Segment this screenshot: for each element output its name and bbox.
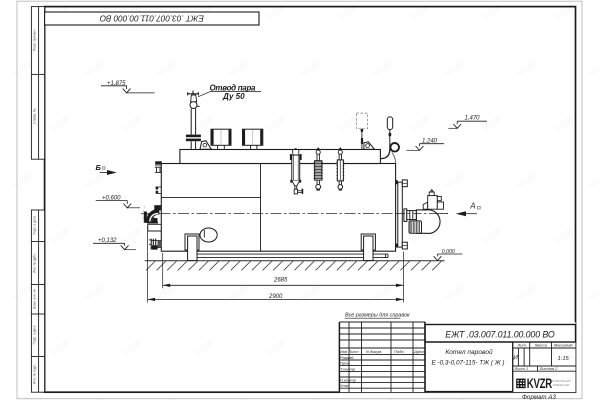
svg-text:Формат А3: Формат А3 <box>522 394 556 400</box>
svg-text:Все размеры для справок: Все размеры для справок <box>345 313 410 319</box>
svg-text:Перв. примен.: Перв. примен. <box>33 29 37 52</box>
svg-text:Котел паровой: Котел паровой <box>445 348 493 356</box>
svg-text:Масштаб: Масштаб <box>554 343 573 348</box>
svg-text:Справ. №: Справ. № <box>33 108 37 124</box>
svg-text:KVZR: KVZR <box>527 377 553 392</box>
svg-text:N докум.: N докум. <box>366 349 382 354</box>
svg-text:Подп. и дата: Подп. и дата <box>33 325 37 344</box>
svg-text:ЕЖТ .03.007.011.00.000 ВО: ЕЖТ .03.007.011.00.000 ВО <box>445 329 555 339</box>
svg-text:Инв. № подл.: Инв. № подл. <box>33 364 37 384</box>
svg-text:Взам. инв. №: Взам. инв. № <box>33 289 37 309</box>
svg-text:Е -0,3-0,07-115- ТЖ ( Ж ): Е -0,3-0,07-115- ТЖ ( Ж ) <box>431 359 504 366</box>
svg-text:Т.контр: Т.контр <box>340 366 356 371</box>
svg-text:А: А <box>469 201 475 210</box>
svg-text:Утв.: Утв. <box>340 383 349 388</box>
svg-text:Лит.: Лит. <box>517 343 527 348</box>
svg-text:Масса: Масса <box>535 343 548 348</box>
svg-text:2685: 2685 <box>273 278 288 284</box>
svg-text:Н.контр: Н.контр <box>340 378 357 383</box>
svg-text:Разраб.: Разраб. <box>340 355 354 360</box>
svg-text:2900: 2900 <box>268 294 283 300</box>
svg-text:Б: Б <box>96 163 102 172</box>
svg-text:1:15: 1:15 <box>558 356 570 362</box>
svg-text:Изм Лист: Изм Лист <box>340 349 359 354</box>
svg-text:Подп.: Подп. <box>394 349 405 354</box>
svg-text:И: И <box>513 355 518 362</box>
svg-text:Инв. № дубл.: Инв. № дубл. <box>33 253 37 273</box>
svg-text:ЗАВОД РЭР: ЗАВОД РЭР <box>553 383 570 387</box>
svg-text:Подп. и дата: Подп. и дата <box>33 216 37 235</box>
svg-text:Ду 50: Ду 50 <box>222 92 245 101</box>
svg-text:Пров.: Пров. <box>340 361 351 366</box>
svg-text:Лист 1: Лист 1 <box>514 366 529 371</box>
svg-text:ЕЖТ .03.007.011.00.000 ВО: ЕЖТ .03.007.011.00.000 ВО <box>99 13 204 22</box>
svg-text:Листов 2: Листов 2 <box>539 366 559 371</box>
svg-text:Дата: Дата <box>413 349 425 354</box>
